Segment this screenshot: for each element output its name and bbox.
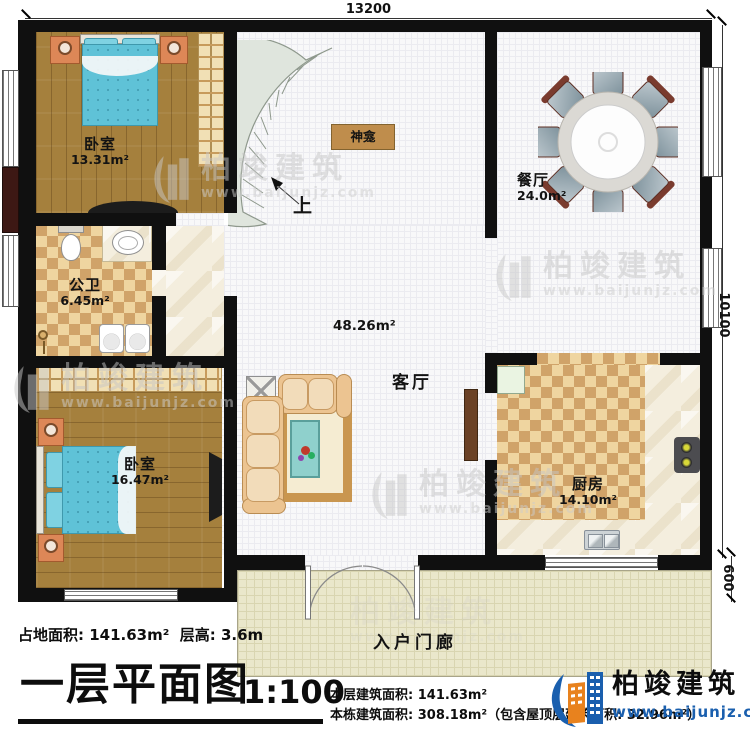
burner-icon <box>681 457 692 468</box>
floor-height-text: 层高: 3.6m <box>180 626 263 644</box>
living-label: 客厅 <box>392 374 432 393</box>
entrance-double-door <box>300 560 425 626</box>
title-underline <box>18 719 323 724</box>
wall-kitchen-top-right <box>660 353 712 365</box>
wall-bedroom1-right <box>224 32 237 213</box>
stove <box>674 437 700 473</box>
dimension-width: 13200 <box>25 2 712 17</box>
wall-bathroom-right-upper <box>152 213 166 270</box>
bay-panel <box>2 167 19 233</box>
sink-basin <box>604 534 619 548</box>
bedroom1-label: 卧室13.31m² <box>55 136 145 167</box>
company-site: www.baijunjz.com <box>612 703 750 721</box>
hall-nook-floor <box>166 225 224 356</box>
tv <box>209 452 222 522</box>
lamp-icon <box>167 41 181 55</box>
window <box>2 70 19 167</box>
bedroom1-door-opening <box>176 213 224 226</box>
coffee-table <box>290 420 320 478</box>
land-area-text: 占地面积: 141.63m² 层高: 3.6m <box>18 624 263 645</box>
wall-kitchen-top-left <box>497 353 537 365</box>
company-name: 柏竣建筑 <box>612 671 740 698</box>
bathroom-label: 公卫6.45m² <box>40 277 130 308</box>
sink <box>112 230 144 255</box>
company-logo-icon <box>548 666 608 728</box>
bed-headboard <box>36 446 44 534</box>
living-area-label: 48.26m² <box>333 319 396 334</box>
shrine-label: 神龛 <box>350 130 375 144</box>
wall-bathroom-bottom <box>18 356 224 368</box>
sink-basin <box>588 534 603 548</box>
stairs-up-label: 上 <box>293 196 312 217</box>
window <box>64 589 178 601</box>
wall-kitchen-left-lower <box>485 460 497 570</box>
porch-label: 入户门廊 <box>373 634 457 653</box>
staircase <box>228 40 340 230</box>
sofa-cushion <box>308 378 334 410</box>
wall-bathroom-right-lower <box>152 296 166 356</box>
door-leaf <box>415 566 420 619</box>
sofa-cushion <box>246 468 280 502</box>
shrine: 神龛 <box>331 124 395 150</box>
fridge <box>497 366 525 394</box>
sofa-cushion <box>246 400 280 434</box>
dimension-height: 10100 <box>715 285 731 345</box>
bedroom2-label: 卧室16.47m² <box>95 456 185 487</box>
wall-left <box>18 20 36 602</box>
wall-bottom-middle <box>418 555 545 570</box>
sofa-arm <box>336 374 352 418</box>
flower-bud-icon <box>298 455 304 461</box>
wall-bottom-left <box>233 555 305 570</box>
dining-living-opening <box>485 238 497 353</box>
kitchen-label: 厨房14.10m² <box>548 476 628 507</box>
wall-kitchen-left-upper <box>485 353 497 393</box>
wall-dining-living <box>485 32 497 238</box>
window <box>702 67 722 177</box>
nightstand <box>38 534 64 562</box>
sofa-cushion <box>282 378 308 410</box>
lamp-icon <box>44 423 58 437</box>
wall-bottom-right <box>658 555 712 570</box>
kitchen-dining-opening <box>537 353 660 365</box>
sliding-door <box>545 557 658 568</box>
door-leaf <box>306 566 311 619</box>
kitchen-door-leaf <box>464 389 478 461</box>
flower-leaf-icon <box>308 452 315 459</box>
plan-title: 一层平面图 <box>20 663 250 707</box>
wall-top <box>18 20 712 32</box>
toilet <box>61 234 81 261</box>
floor-drain-stem <box>43 341 45 354</box>
floor-drain-icon <box>38 330 48 340</box>
dimension-line-top <box>25 18 712 19</box>
lamp-icon <box>58 41 72 55</box>
kitchen-living-opening <box>485 393 497 460</box>
nightstand <box>160 36 188 64</box>
washing-machine <box>99 324 124 353</box>
bathroom-door-opening <box>152 270 166 296</box>
floor-plan: 神龛 上 <box>0 0 750 740</box>
dimension-porch: 600 <box>719 556 735 600</box>
floor-area-text: 本层建筑面积: 141.63m² <box>330 684 487 703</box>
nightstand <box>50 36 80 64</box>
wardrobe <box>36 366 222 392</box>
kitchen-sink <box>584 530 620 550</box>
nightstand <box>38 418 64 446</box>
washing-machine <box>125 324 150 353</box>
burner-icon <box>681 442 692 453</box>
lamp-icon <box>44 539 58 553</box>
dining-label: 餐厅24.0m² <box>517 172 566 203</box>
wardrobe <box>198 33 224 167</box>
sofa-cushion <box>246 434 280 468</box>
window <box>2 235 19 307</box>
